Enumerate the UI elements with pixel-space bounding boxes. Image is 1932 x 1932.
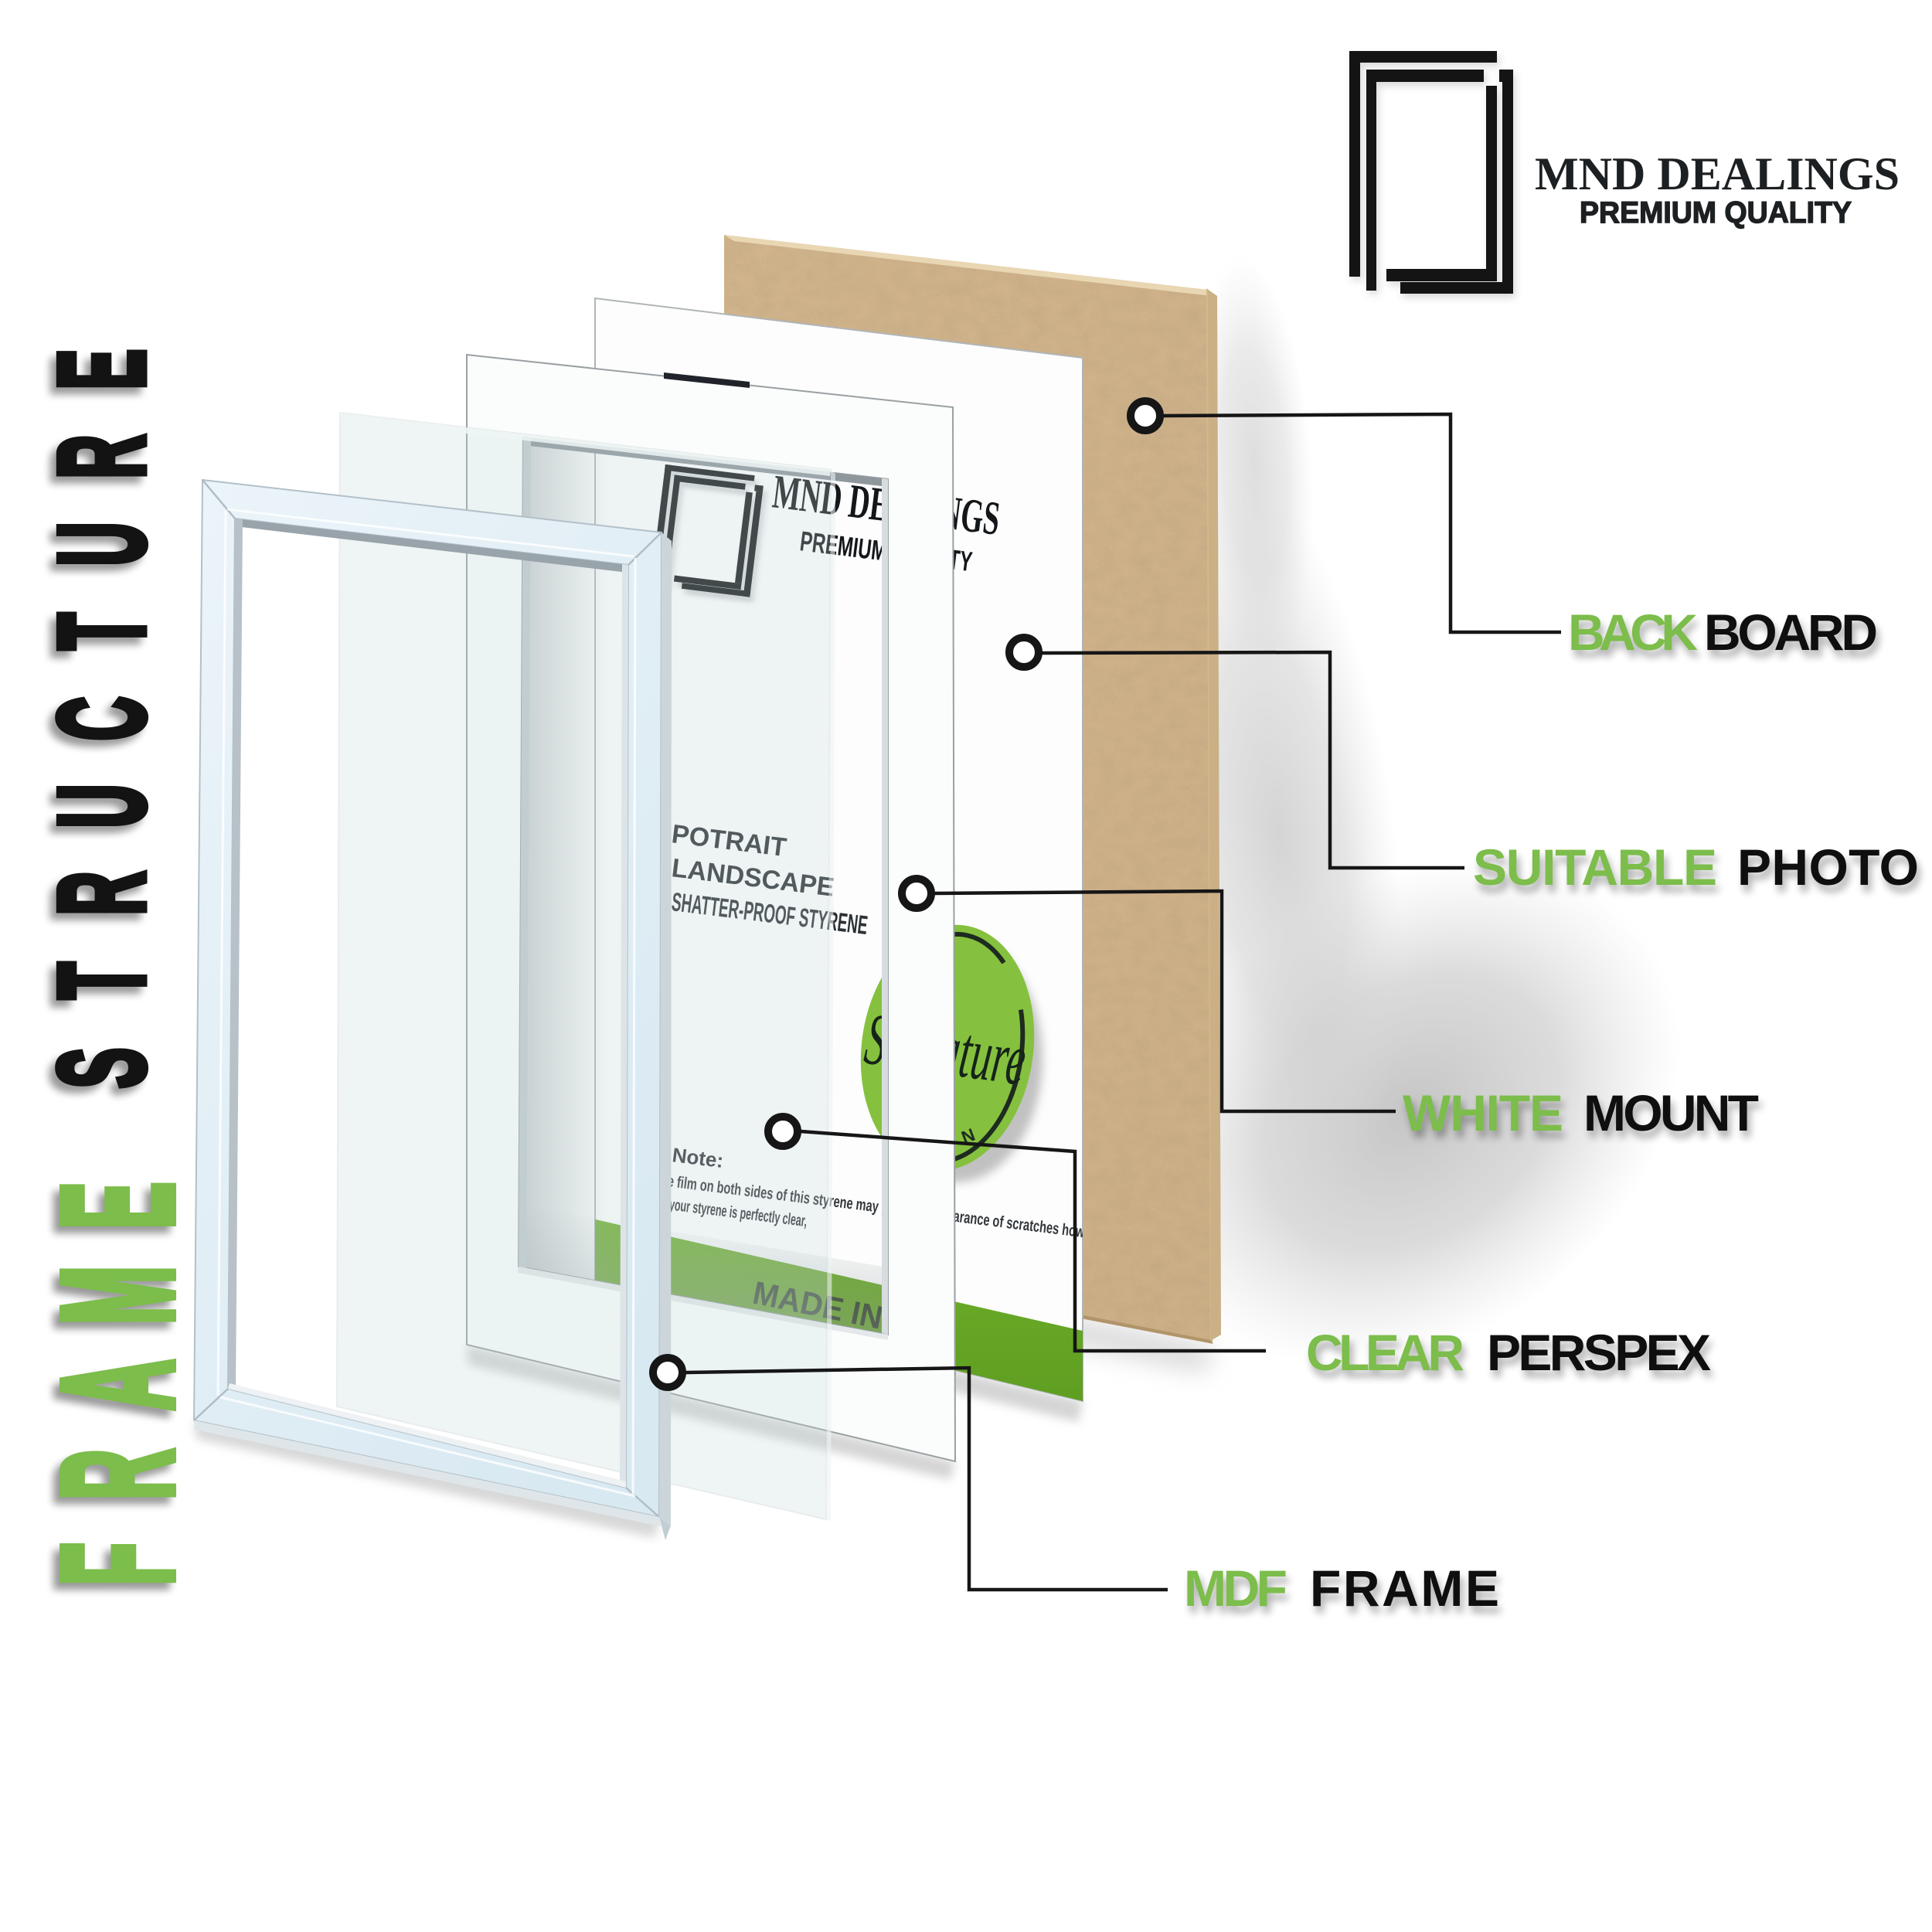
- svg-text:A: A: [29, 1359, 206, 1411]
- svg-text:M: M: [29, 1266, 206, 1325]
- svg-text:FRAME: FRAME: [1310, 1560, 1499, 1617]
- svg-text:R: R: [29, 1449, 206, 1501]
- svg-text:R: R: [34, 871, 170, 915]
- svg-text:U: U: [34, 522, 170, 566]
- svg-text:E: E: [29, 1182, 206, 1230]
- svg-text:CLEAR: CLEAR: [1306, 1324, 1464, 1381]
- svg-text:WHITE: WHITE: [1403, 1084, 1563, 1141]
- svg-text:MOUNT: MOUNT: [1583, 1084, 1759, 1141]
- svg-text:BACK: BACK: [1568, 604, 1698, 661]
- svg-text:MND DEALINGS: MND DEALINGS: [1535, 148, 1900, 199]
- svg-text:T: T: [34, 613, 170, 650]
- svg-text:F: F: [29, 1543, 206, 1586]
- svg-text:PHOTO: PHOTO: [1737, 838, 1919, 896]
- svg-text:E: E: [34, 349, 170, 390]
- svg-text:MDF: MDF: [1184, 1560, 1287, 1617]
- svg-text:BOARD: BOARD: [1704, 604, 1878, 661]
- svg-text:R: R: [34, 434, 170, 478]
- svg-text:S: S: [34, 1048, 170, 1089]
- svg-text:C: C: [34, 696, 170, 740]
- svg-text:T: T: [34, 962, 170, 999]
- svg-text:PERSPEX: PERSPEX: [1487, 1324, 1711, 1381]
- svg-text:U: U: [34, 784, 170, 828]
- svg-text:SUITABLE: SUITABLE: [1473, 838, 1717, 896]
- svg-text:PREMIUM QUALITY: PREMIUM QUALITY: [1580, 196, 1852, 230]
